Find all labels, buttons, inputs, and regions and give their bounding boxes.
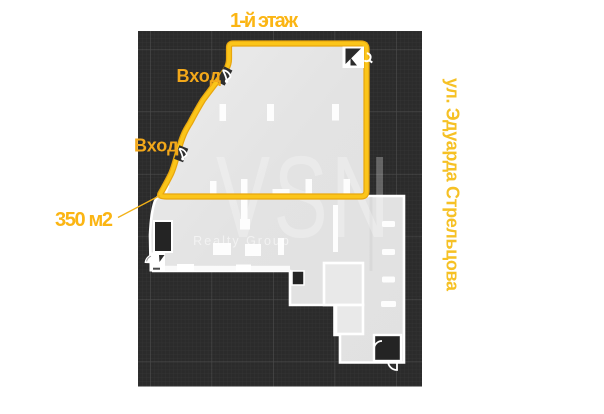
svg-text:ул. Эдуарда Стрельцова: ул. Эдуарда Стрельцова: [443, 78, 463, 292]
svg-text:Вход: Вход: [134, 136, 179, 156]
svg-text:350 м2: 350 м2: [55, 209, 113, 231]
svg-text:1-й этаж: 1-й этаж: [230, 10, 299, 32]
svg-text:Вход: Вход: [176, 66, 221, 86]
svg-text:Realty Group: Realty Group: [193, 234, 291, 248]
